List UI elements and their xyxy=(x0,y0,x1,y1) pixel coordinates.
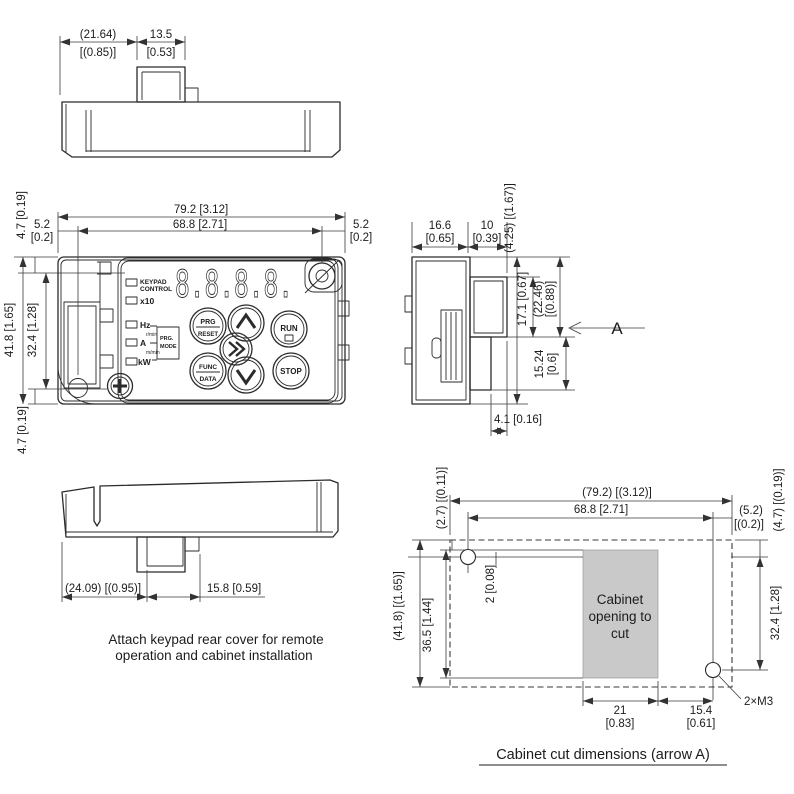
cabinet-cut-view: Cabinet opening to cut 2×M3 (79.2) [(3.1… xyxy=(393,467,785,765)
hz-led xyxy=(126,321,137,328)
func-button-label: FUNC xyxy=(199,364,217,371)
amp-led xyxy=(126,339,137,346)
front-view-dimensions: 79.2 [3.12] 68.8 [2.71] 5.2 [0.2] 5.2 [0… xyxy=(4,191,372,454)
dim-15-24-in: [0.6] xyxy=(547,353,559,375)
shift-double-chevron-icon xyxy=(229,342,244,356)
rear-view-outline xyxy=(62,480,338,537)
keypad-control-label-2: CONTROL xyxy=(140,286,172,293)
dim-4-7-top: 4.7 [0.19] xyxy=(16,191,28,239)
cabinet-caption: Cabinet cut dimensions (arrow A) xyxy=(496,747,710,763)
keypad-control-label-1: KEYPAD xyxy=(140,279,167,286)
display-value: 8.8.8.8. xyxy=(175,263,293,306)
dim-15-24: 15.24 xyxy=(534,349,546,378)
rear-tab xyxy=(137,537,185,572)
dim-17-1: 17.1 [0.67] xyxy=(517,272,529,326)
dim-42-5: (4.25) [(1.67)] xyxy=(504,183,516,253)
side-mount-tab xyxy=(470,277,507,337)
dim-2-cab: 2 [0.08] xyxy=(485,565,497,603)
dim-79-2-cab: (79.2) [(3.12)] xyxy=(582,487,652,499)
dim-68-8: 68.8 [2.71] xyxy=(173,219,227,231)
r-min-label: r/min xyxy=(146,332,157,338)
keypad-dimension-drawing: (21.64) [(0.85)] 13.5 [0.53] xyxy=(0,0,794,794)
m-min-label: m/min xyxy=(146,350,160,356)
rear-tab-step xyxy=(185,537,199,551)
right-clip-top xyxy=(338,301,349,316)
hole-count-label: 2×M3 xyxy=(744,696,773,708)
x10-label: x10 xyxy=(140,296,154,306)
dim-24-09: (24.09) [(0.95)] xyxy=(65,583,141,595)
kw-label: kW xyxy=(138,357,152,367)
side-lower-block xyxy=(470,337,491,390)
run-button: RUN xyxy=(271,311,307,347)
top-view-outline xyxy=(62,102,340,157)
amp-label: A xyxy=(140,338,146,348)
opening-label-line1: Cabinet xyxy=(597,592,644,607)
prg-mode-label-2: MODE xyxy=(160,344,177,350)
x10-led xyxy=(126,297,137,304)
left-clip-top xyxy=(100,309,113,322)
top-view: (21.64) [(0.85)] 13.5 [0.53] xyxy=(60,29,340,157)
dim-5-2-right-in: [0.2] xyxy=(350,232,372,244)
front-view: 8.8.8.8. KEYPAD CONTROL x10 Hz r/min A m… xyxy=(4,191,372,454)
dim-15-8: 15.8 [0.59] xyxy=(207,583,261,595)
dim-32-4-cab: 32.4 [1.28] xyxy=(770,586,782,640)
keypad-control-led xyxy=(126,279,137,286)
prg-reset-button: PRG RESET xyxy=(190,308,226,344)
side-view: 16.6 [0.65] 10 [0.39] (4.25) [(1.67)] 17… xyxy=(405,183,645,436)
dim-4-7-bottom: 4.7 [0.19] xyxy=(17,406,29,454)
dim-10-in: [0.39] xyxy=(473,233,502,245)
dim-68-8-cab: 68.8 [2.71] xyxy=(574,504,628,516)
dim-79-2: 79.2 [3.12] xyxy=(174,204,228,216)
left-side-panel xyxy=(64,302,100,388)
opening-label-line3: cut xyxy=(611,626,629,641)
top-view-tab-step xyxy=(185,88,198,102)
hz-label: Hz xyxy=(140,320,150,330)
dim-41-8: 41.8 [1.65] xyxy=(4,303,16,357)
down-arrow-icon xyxy=(237,370,255,383)
stop-button-label: STOP xyxy=(280,367,302,376)
dim-16-6-in: [0.65] xyxy=(426,233,455,245)
run-led xyxy=(285,335,293,341)
side-clip-top xyxy=(405,296,412,312)
keypad-buttons: PRG RESET RUN FUNC DATA xyxy=(190,305,309,393)
indicator-labels: KEYPAD CONTROL x10 Hz r/min A m/min kW P… xyxy=(126,279,179,367)
dim-4-1: 4.1 [0.16] xyxy=(494,414,542,426)
mounting-hole-bottom-right xyxy=(706,663,721,678)
seven-segment-display: 8.8.8.8. xyxy=(175,263,293,306)
dim-41-8-cab: (41.8) [(1.65)] xyxy=(393,571,405,641)
run-button-label: RUN xyxy=(280,324,298,333)
dim-32-4: 32.4 [1.28] xyxy=(27,303,39,357)
up-arrow-icon xyxy=(237,315,255,328)
dim-22-46-in: [(0.88)] xyxy=(545,281,557,317)
screw-boss-top-right xyxy=(305,259,342,293)
dim-4-7-cab: (4.7) [(0.19)] xyxy=(773,468,785,531)
prg-button-label: PRG xyxy=(200,319,216,326)
side-view-dimensions: 16.6 [0.65] 10 [0.39] (4.25) [(1.67)] 17… xyxy=(412,183,575,436)
dim-5-2-cab-in: [(0.2)] xyxy=(734,519,764,531)
down-arrow-button xyxy=(228,357,264,393)
prg-mode-label-1: PRG. xyxy=(160,336,174,342)
dim-36-5-cab: 36.5 [1.44] xyxy=(422,598,434,652)
dim-5-2-left: 5.2 xyxy=(34,219,50,231)
func-data-button: FUNC DATA xyxy=(190,353,226,389)
dim-21-64-mm: (21.64) xyxy=(80,29,117,41)
right-clip-bottom xyxy=(338,345,349,360)
data-button-label: DATA xyxy=(199,376,216,383)
screw-bottom-left xyxy=(108,374,133,399)
dim-10: 10 xyxy=(481,220,494,232)
rear-view: (24.09) [(0.95)] 15.8 [0.59] Attach keyp… xyxy=(62,480,338,663)
rear-caption-line2: operation and cabinet installation xyxy=(115,648,312,663)
dim-15-4-cab-in: [0.61] xyxy=(687,718,716,730)
dim-5-2-left-in: [0.2] xyxy=(31,232,53,244)
dim-16-6: 16.6 xyxy=(429,220,451,232)
dim-15-4-cab: 15.4 xyxy=(690,705,713,717)
side-clip-bottom xyxy=(405,348,412,364)
dim-21-64-in: [(0.85)] xyxy=(80,47,116,59)
mounting-hole-top-left xyxy=(461,550,476,565)
dim-21-cab: 21 xyxy=(614,705,627,717)
dim-22-46: (22.46) xyxy=(533,281,545,318)
dim-13-5-mm: 13.5 xyxy=(150,29,172,41)
side-connector xyxy=(441,310,462,382)
dim-21-cab-in: [0.83] xyxy=(606,718,635,730)
dim-5-2-cab: (5.2) xyxy=(739,505,763,517)
up-arrow-button xyxy=(228,305,264,341)
dim-13-5-in: [0.53] xyxy=(147,47,176,59)
dim-5-2-right: 5.2 xyxy=(353,219,369,231)
prg-mode-box xyxy=(157,327,179,359)
view-arrow-a: A xyxy=(569,319,645,338)
stop-button: STOP xyxy=(273,353,309,389)
left-clip-bottom xyxy=(100,355,113,368)
dim-2-7-cab: (2.7) [(0.11)] xyxy=(436,467,448,529)
engineering-drawing-page: (21.64) [(0.85)] 13.5 [0.53] xyxy=(0,0,794,794)
kw-led xyxy=(126,358,137,365)
reset-button-label: RESET xyxy=(198,332,218,338)
arrow-a-label: A xyxy=(611,319,623,338)
opening-label-line2: opening to xyxy=(588,609,651,624)
rear-caption-line1: Attach keypad rear cover for remote xyxy=(108,632,323,647)
